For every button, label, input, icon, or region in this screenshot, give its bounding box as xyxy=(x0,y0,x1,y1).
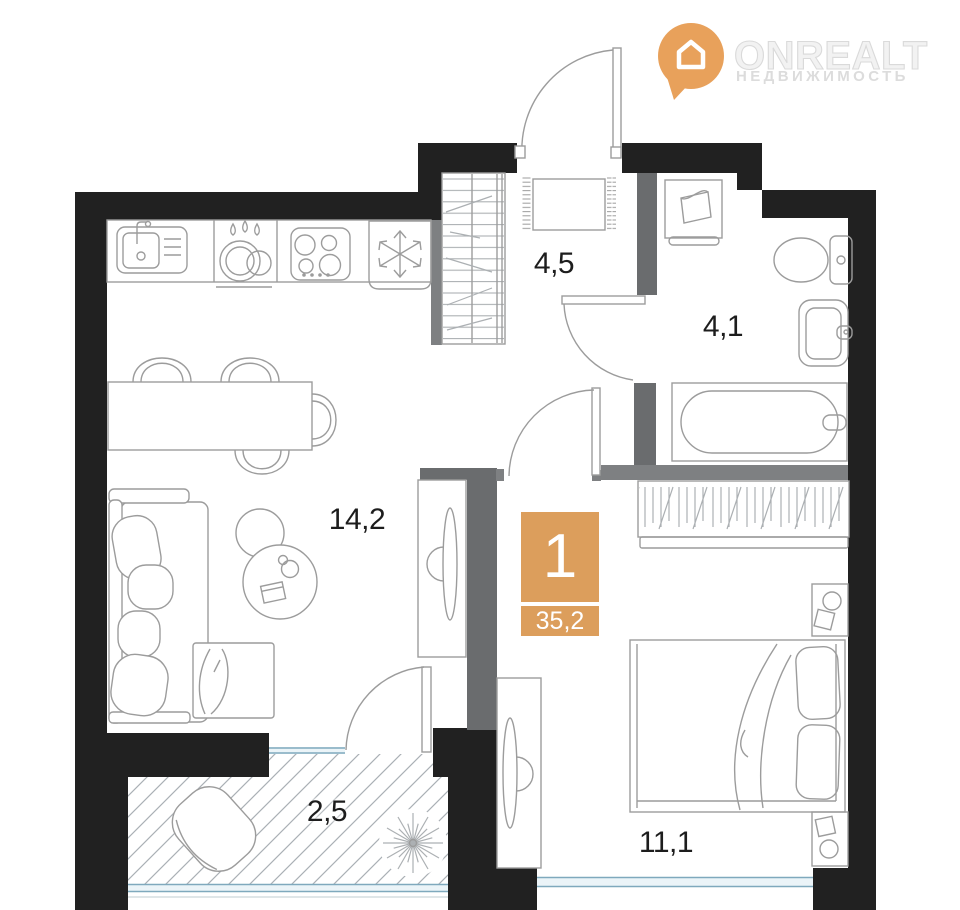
balcony-window xyxy=(269,747,345,754)
entrance-door xyxy=(515,48,621,158)
kitchen-counter xyxy=(107,220,431,287)
bedroom-window xyxy=(537,877,813,887)
tv-unit-living xyxy=(418,480,466,657)
location-pin-house-icon xyxy=(654,22,726,102)
bathroom-sink-icon xyxy=(799,300,852,366)
bathroom-door xyxy=(562,296,645,380)
fridge-icon xyxy=(369,221,431,289)
bed xyxy=(630,640,845,812)
stove-icon xyxy=(291,228,350,280)
toilet-icon xyxy=(774,236,852,284)
living-door xyxy=(509,388,600,476)
nightstand-top xyxy=(812,584,848,636)
room-label-balcony: 2,5 xyxy=(307,795,347,829)
onrealt-logo: ONREALT НЕДВИЖИМОСТЬ xyxy=(654,22,954,102)
floor-plan xyxy=(0,0,960,910)
balcony-plant-icon xyxy=(379,809,447,877)
room-label-hallway: 4,5 xyxy=(534,247,574,281)
entrance-mat xyxy=(522,176,616,232)
dining-table xyxy=(108,382,312,450)
unit-rooms-count: 1 xyxy=(521,512,599,602)
balcony-door xyxy=(346,667,431,752)
coffee-rug xyxy=(236,509,317,619)
kitchen-dishes-icon xyxy=(220,221,271,281)
room-label-living-kitchen: 14,2 xyxy=(329,503,385,537)
balcony-glazing xyxy=(128,884,448,897)
unit-total-area: 35,2 xyxy=(521,606,599,636)
sofa xyxy=(108,489,274,723)
room-label-bedroom: 11,1 xyxy=(639,826,693,860)
logo-tagline-text: НЕДВИЖИМОСТЬ xyxy=(736,68,909,85)
tv-unit-bedroom xyxy=(497,678,541,868)
kitchen-sink-icon xyxy=(117,222,187,274)
room-label-bathroom: 4,1 xyxy=(703,310,743,344)
nightstand-bottom xyxy=(812,812,848,866)
hall-closet xyxy=(442,173,505,344)
unit-badge: 1 35,2 xyxy=(521,512,599,636)
bathtub-icon xyxy=(672,383,847,461)
washing-machine-icon xyxy=(665,180,722,245)
bedroom-wardrobe xyxy=(638,481,849,548)
